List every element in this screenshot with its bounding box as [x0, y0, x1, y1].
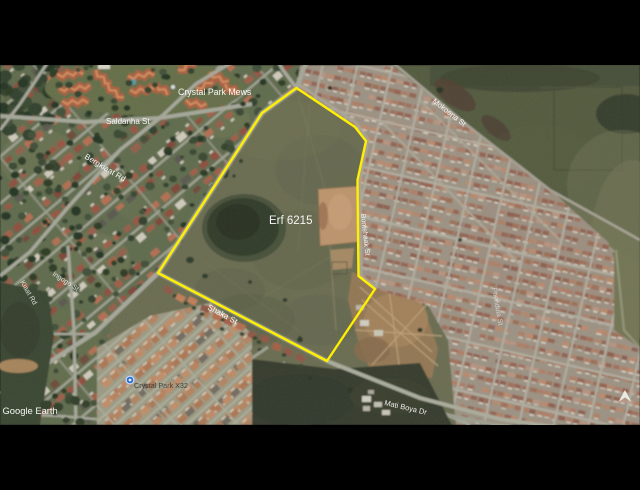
svg-text:Erf 6215: Erf 6215 — [269, 215, 312, 227]
svg-text:Crystal Park X32: Crystal Park X32 — [134, 381, 188, 390]
svg-text:Saldanha St: Saldanha St — [106, 117, 150, 126]
svg-text:Crystal Park Mews: Crystal Park Mews — [178, 87, 252, 97]
svg-text:Google Earth: Google Earth — [3, 405, 58, 416]
